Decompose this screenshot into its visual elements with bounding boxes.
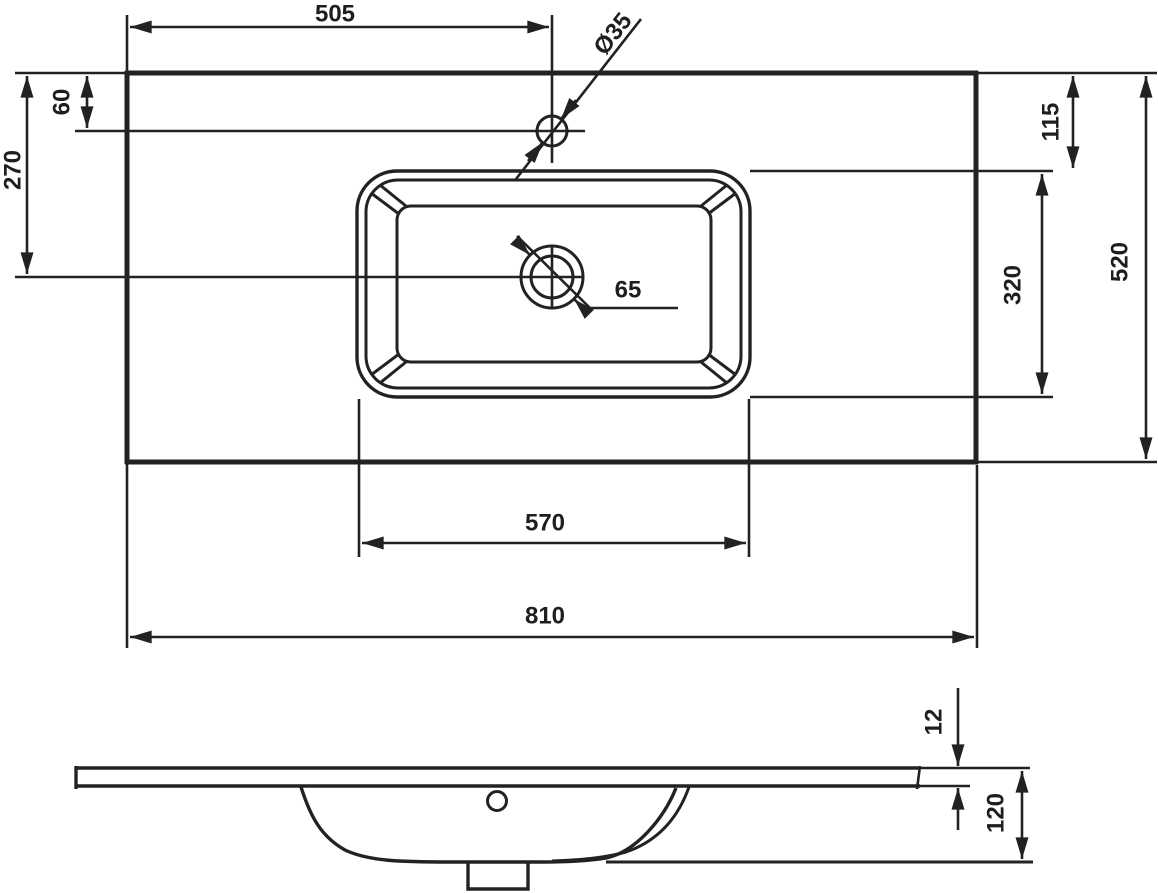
dim-label-810: 810 (525, 603, 565, 630)
dim-label-505: 505 (315, 1, 355, 28)
dim65-arrow-lower (574, 299, 588, 313)
dim-label-270: 270 (0, 150, 27, 190)
bowl-inner-profile (552, 787, 689, 861)
dim-label-115: 115 (1038, 103, 1065, 142)
dia35-arrow-upper (561, 100, 576, 119)
dim-label-320: 320 (1000, 265, 1027, 305)
dim-label-570: 570 (525, 510, 565, 537)
top-view: 505 Ø35 60 270 115 320 520 65 570 810 (0, 1, 1157, 649)
basin-inner-rim (397, 206, 711, 362)
drain-outlet (468, 862, 528, 889)
dim-label-65: 65 (615, 277, 642, 304)
basin-corner-chamfers (371, 185, 736, 383)
drawing-canvas: 505 Ø35 60 270 115 320 520 65 570 810 (0, 0, 1158, 893)
dim-label-520: 520 (1107, 242, 1134, 282)
front-view: 12 120 (76, 688, 1033, 889)
technical-drawing: 505 Ø35 60 270 115 320 520 65 570 810 (0, 0, 1158, 893)
dim-label-12: 12 (921, 709, 948, 736)
dim-label-60: 60 (49, 89, 76, 116)
basin-mid-rim (366, 180, 741, 388)
faucet-hole-front (488, 792, 507, 811)
dim-label-120: 120 (983, 793, 1010, 833)
dia35-arrow-lower (528, 142, 543, 161)
